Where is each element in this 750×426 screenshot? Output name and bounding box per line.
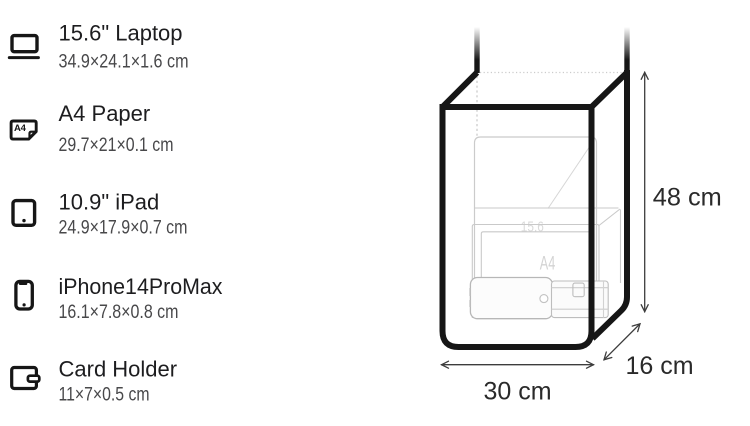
svg-text:29.7×21×0.1 cm: 29.7×21×0.1 cm <box>59 135 174 156</box>
svg-text:iPhone14ProMax: iPhone14ProMax <box>59 274 223 299</box>
svg-text:16.1×7.8×0.8 cm: 16.1×7.8×0.8 cm <box>59 302 179 323</box>
svg-text:34.9×24.1×1.6 cm: 34.9×24.1×1.6 cm <box>59 52 189 73</box>
svg-text:48 cm: 48 cm <box>653 183 722 211</box>
svg-text:10.9" iPad: 10.9" iPad <box>59 190 160 215</box>
svg-text:15.6: 15.6 <box>521 219 544 236</box>
svg-text:15.6" Laptop: 15.6" Laptop <box>59 21 183 46</box>
svg-text:A4: A4 <box>540 254 556 275</box>
svg-text:11×7×0.5 cm: 11×7×0.5 cm <box>59 385 150 406</box>
svg-text:A4 Paper: A4 Paper <box>59 101 151 126</box>
svg-text:24.9×17.9×0.7 cm: 24.9×17.9×0.7 cm <box>59 218 188 239</box>
svg-text:16 cm: 16 cm <box>626 352 694 380</box>
svg-text:A4: A4 <box>14 123 27 134</box>
svg-text:30 cm: 30 cm <box>484 377 552 405</box>
svg-text:Card Holder: Card Holder <box>59 357 178 382</box>
